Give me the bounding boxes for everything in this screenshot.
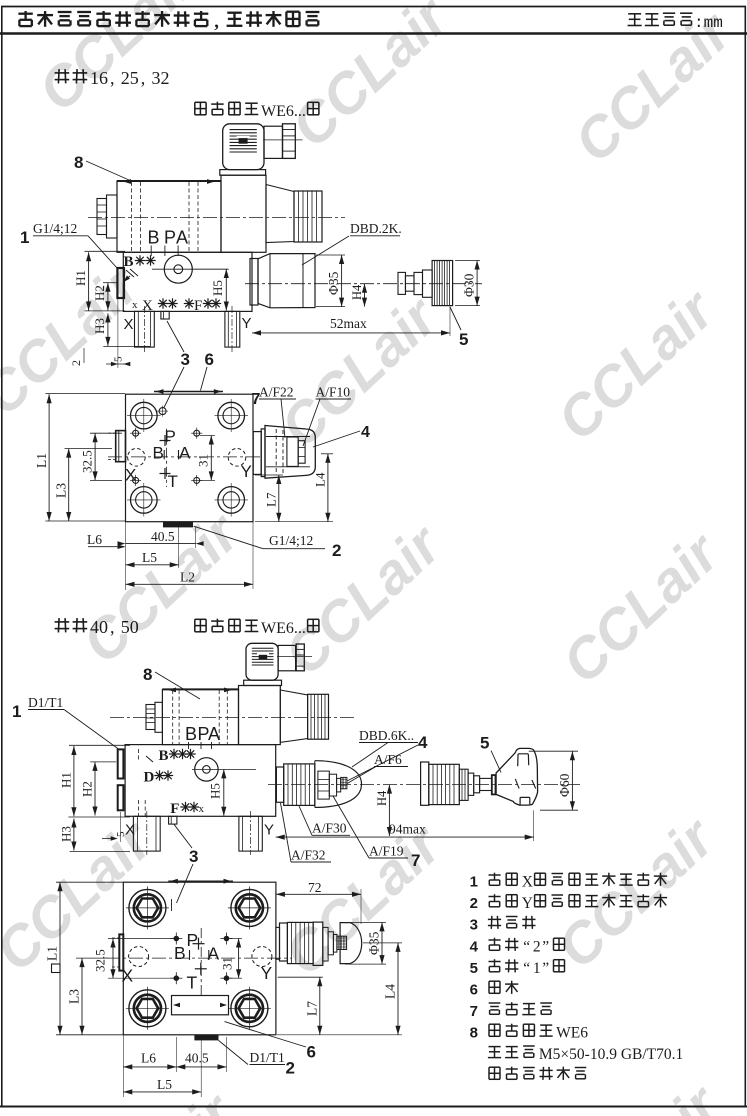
svg-text:8: 8 <box>74 153 83 172</box>
svg-text:2: 2 <box>332 541 341 560</box>
svg-text:H5: H5 <box>208 783 223 799</box>
svg-text:B: B <box>153 444 164 463</box>
svg-text:Y: Y <box>264 822 274 839</box>
svg-text:L7: L7 <box>264 492 279 507</box>
svg-text:A: A <box>179 444 191 463</box>
svg-text:A/F6: A/F6 <box>374 752 402 767</box>
svg-text:2: 2 <box>470 895 478 912</box>
svg-text:WE6...: WE6... <box>261 103 306 120</box>
svg-text:H2: H2 <box>80 781 95 797</box>
svg-text:H4: H4 <box>375 790 389 806</box>
svg-text:L5: L5 <box>157 1077 172 1092</box>
svg-text:16: 16 <box>90 68 108 88</box>
svg-text:31: 31 <box>196 454 211 467</box>
svg-text:”: ” <box>542 960 549 977</box>
svg-text:72: 72 <box>308 880 322 895</box>
svg-text:A/F22: A/F22 <box>259 385 294 400</box>
svg-text:F: F <box>170 801 179 817</box>
svg-text:B: B <box>124 254 134 270</box>
svg-text:A: A <box>208 724 220 744</box>
svg-text:40.5: 40.5 <box>185 1051 209 1066</box>
svg-text:x: x <box>199 803 205 815</box>
svg-text:D: D <box>144 770 155 786</box>
svg-text:F: F <box>194 298 202 314</box>
svg-text:CCLair: CCLair <box>546 277 728 453</box>
svg-text:32.5: 32.5 <box>80 450 95 473</box>
svg-text:2: 2 <box>69 360 83 366</box>
svg-text:B: B <box>148 228 160 248</box>
svg-text:1: 1 <box>20 228 29 247</box>
svg-text:L1: L1 <box>34 453 49 468</box>
svg-text:4: 4 <box>418 733 428 752</box>
svg-text:G1/4;12: G1/4;12 <box>33 221 77 236</box>
svg-text:2: 2 <box>286 1059 295 1078</box>
svg-text:H2: H2 <box>92 285 107 301</box>
svg-text:5: 5 <box>470 960 478 977</box>
svg-text:32: 32 <box>152 68 170 88</box>
svg-text:5: 5 <box>113 356 125 362</box>
svg-text:Φ30: Φ30 <box>462 273 477 297</box>
svg-text:G1/4;12: G1/4;12 <box>269 533 313 548</box>
svg-text:31: 31 <box>220 957 235 970</box>
svg-text:B: B <box>185 724 197 744</box>
svg-text:25: 25 <box>121 68 139 88</box>
svg-text:L3: L3 <box>67 989 82 1004</box>
svg-text:L7: L7 <box>305 1001 320 1016</box>
svg-text:A: A <box>176 228 188 248</box>
svg-text:Φ35: Φ35 <box>326 271 341 295</box>
svg-text:L5: L5 <box>142 550 157 565</box>
svg-text:X: X <box>124 316 134 333</box>
svg-text:5: 5 <box>459 330 468 349</box>
svg-text:H3: H3 <box>92 318 107 334</box>
svg-text:L4: L4 <box>383 984 398 999</box>
svg-text::mm: :mm <box>694 14 723 32</box>
svg-text:”: ” <box>542 939 549 956</box>
svg-text:“: “ <box>523 960 530 977</box>
svg-text:L2: L2 <box>180 570 195 585</box>
svg-text:Φ60: Φ60 <box>557 773 572 797</box>
svg-text:D1/T1: D1/T1 <box>28 695 63 710</box>
svg-text:A/F32: A/F32 <box>291 848 326 863</box>
svg-text:WE6...: WE6... <box>261 620 306 637</box>
svg-text:A/F30: A/F30 <box>312 821 347 836</box>
svg-text:DBD.2K.: DBD.2K. <box>350 221 402 236</box>
svg-text:2: 2 <box>533 939 541 956</box>
svg-text:M5×50-10.9 GB/T70.1: M5×50-10.9 GB/T70.1 <box>539 1046 683 1063</box>
svg-text:Y: Y <box>522 895 533 912</box>
svg-text:x: x <box>132 299 138 311</box>
svg-text:H5: H5 <box>210 280 225 296</box>
svg-text:A/F10: A/F10 <box>316 385 351 400</box>
svg-text:A/F19: A/F19 <box>369 844 404 859</box>
svg-text:DBD.6K..: DBD.6K.. <box>359 728 414 743</box>
svg-text:3: 3 <box>181 350 190 369</box>
svg-text:40.5: 40.5 <box>151 529 175 544</box>
svg-text:50: 50 <box>121 617 139 637</box>
svg-text:X: X <box>125 466 136 485</box>
svg-text:52max: 52max <box>330 316 367 331</box>
svg-text:T: T <box>187 973 198 993</box>
svg-text:WE6: WE6 <box>556 1025 588 1042</box>
svg-text:,: , <box>214 13 219 33</box>
svg-text:X: X <box>522 874 533 891</box>
svg-text:7: 7 <box>411 851 420 870</box>
svg-text:P: P <box>187 930 199 950</box>
svg-text:“: “ <box>523 939 530 956</box>
svg-text:7: 7 <box>470 1003 478 1020</box>
svg-text:Y: Y <box>242 315 252 332</box>
svg-text:D1/T1: D1/T1 <box>250 1050 285 1065</box>
svg-text:,: , <box>110 617 115 637</box>
svg-text:H3: H3 <box>59 826 74 842</box>
svg-text:CCLair: CCLair <box>546 805 728 981</box>
svg-text:H1: H1 <box>59 772 74 788</box>
svg-text:L4: L4 <box>313 472 328 487</box>
svg-text:5: 5 <box>480 734 489 753</box>
svg-text:CCLair: CCLair <box>71 500 253 676</box>
svg-text:L6: L6 <box>87 532 102 547</box>
svg-text:L1: L1 <box>45 946 60 961</box>
svg-text:8: 8 <box>470 1025 478 1042</box>
svg-text:32.5: 32.5 <box>93 949 108 972</box>
svg-text:L6: L6 <box>141 1051 156 1066</box>
svg-text:H4: H4 <box>350 284 364 300</box>
svg-text:P: P <box>164 228 176 248</box>
svg-text:4: 4 <box>470 939 479 956</box>
svg-text:T: T <box>168 472 178 491</box>
svg-text:8: 8 <box>143 665 152 684</box>
svg-text:6: 6 <box>307 1043 316 1062</box>
svg-text:40: 40 <box>90 617 108 637</box>
svg-text:5: 5 <box>115 831 127 837</box>
svg-text:,: , <box>110 68 115 88</box>
svg-text:6: 6 <box>470 982 478 999</box>
svg-text:4: 4 <box>361 424 370 441</box>
svg-text:6: 6 <box>205 350 214 369</box>
svg-text:7: 7 <box>252 391 261 408</box>
svg-text:L3: L3 <box>54 483 69 498</box>
svg-text:CCLair: CCLair <box>269 284 451 460</box>
svg-text:3: 3 <box>470 917 478 934</box>
svg-text:CCLair: CCLair <box>551 520 733 696</box>
svg-text:3: 3 <box>189 847 198 866</box>
svg-text:1: 1 <box>12 702 21 721</box>
svg-text:1: 1 <box>533 960 541 977</box>
svg-text:H1: H1 <box>73 270 88 286</box>
svg-text:B: B <box>174 943 186 963</box>
svg-text:1: 1 <box>470 874 478 891</box>
svg-text:94max: 94max <box>389 822 426 837</box>
svg-text:CCLair: CCLair <box>27 0 209 124</box>
svg-text:,: , <box>141 68 146 88</box>
svg-text:B: B <box>159 748 169 764</box>
